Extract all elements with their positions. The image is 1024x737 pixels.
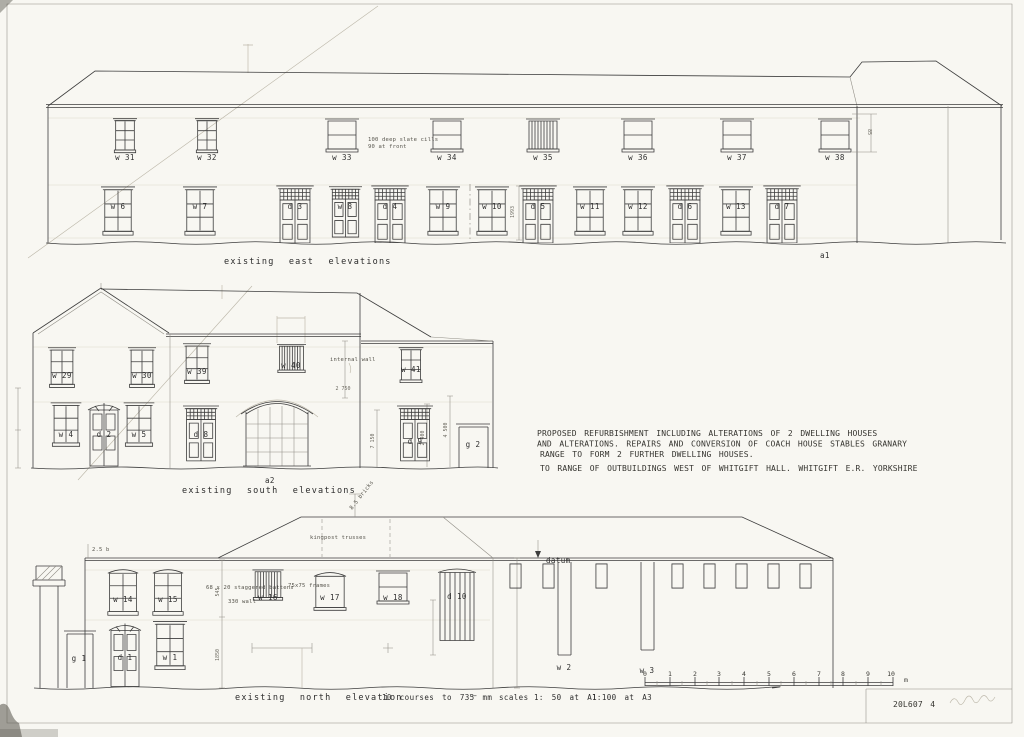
label-w36: w 36	[628, 153, 648, 162]
window-w15	[153, 570, 183, 616]
label-w18: w 18	[383, 593, 403, 602]
dim-545: 545	[215, 587, 221, 596]
north-caption: existing north elevation	[235, 693, 403, 703]
label-d5: d 5	[531, 202, 546, 211]
label-w14: w 14	[113, 595, 133, 604]
scale-tick-0: 0	[643, 670, 647, 678]
edge-smudge-bottom	[0, 729, 58, 737]
notes-line4: TO RANGE OF OUTBUILDINGS WEST OF WHITGIF…	[540, 464, 918, 473]
paper	[0, 0, 1024, 737]
label-d6: d 6	[678, 202, 693, 211]
cill-note-line2: 90 at front	[368, 144, 407, 150]
label-d10: d 10	[447, 592, 467, 601]
door-d7	[763, 186, 800, 243]
south-ref-a2: a2	[265, 476, 275, 485]
window-w10	[475, 187, 509, 235]
window-w32	[195, 119, 219, 153]
scale-tick-9: 9	[866, 670, 870, 678]
door-d9	[397, 406, 433, 461]
window-w29	[48, 348, 76, 388]
datum-arrow	[535, 551, 541, 558]
scale-unit: m	[904, 676, 908, 684]
window-w17	[314, 573, 346, 611]
label-w8: w 8	[338, 202, 353, 211]
north-elevation: datum kingpost trusses 8.5 bricks 2.5 b …	[33, 480, 833, 703]
window-w1	[153, 621, 187, 669]
label-d3: d 3	[288, 202, 303, 211]
label-w32: w 32	[197, 153, 217, 162]
door-d3	[276, 186, 313, 243]
wall-note: 330 wall	[228, 599, 256, 605]
label-g2: g 2	[466, 440, 481, 449]
drawing-sheet: 1993 85 100 deep slate cills 90 at front…	[0, 0, 1024, 737]
scale-tick-2: 2	[693, 670, 697, 678]
window-w9	[426, 187, 460, 235]
vent-opening	[800, 564, 811, 588]
door-d5	[519, 186, 556, 243]
scan-artifacts	[0, 0, 1024, 737]
caption-separator: —	[472, 691, 477, 700]
dim-4500: 4 500	[443, 422, 449, 437]
vent-opening	[672, 564, 683, 588]
notes-line1: PROPOSED REFURBISHMENT INCLUDING ALTERAT…	[537, 429, 877, 438]
corner-smudge-topleft	[0, 0, 13, 13]
window-w33	[325, 119, 359, 152]
label-w17: w 17	[320, 593, 340, 602]
drawing-number: 20L607 4	[893, 700, 935, 709]
window-w37	[720, 119, 754, 152]
east-ref-a1: a1	[820, 251, 830, 260]
label-w3: w 3	[640, 666, 655, 675]
internal-wall-note: internal wall	[330, 357, 376, 363]
label-w5: w 5	[132, 430, 147, 439]
scale-tick-6: 6	[792, 670, 796, 678]
label-d2: d 2	[97, 430, 112, 439]
notes-line3: RANGE TO FORM 2 FURTHER DWELLING HOUSES.	[540, 450, 754, 459]
window-w4	[51, 403, 82, 446]
label-w9: w 9	[436, 202, 451, 211]
label-w41: w 41	[401, 365, 421, 374]
vent-opening	[543, 564, 554, 588]
kingpost-note: kingpost trusses	[310, 535, 366, 541]
vent-opening	[736, 564, 747, 588]
window-w5	[124, 403, 155, 446]
label-w39: w 39	[187, 367, 207, 376]
paper-vignette	[0, 0, 1024, 737]
vent-opening	[596, 564, 607, 588]
scale-a1: 1: 50 at A1	[534, 693, 597, 702]
label-w16: w 16	[258, 593, 278, 602]
scale-tick-10: 10	[887, 670, 895, 678]
label-d1: d 1	[118, 653, 133, 662]
south-elevation: 2 750 internal wall 2 400 4 500 7 150 w …	[15, 283, 498, 496]
scale-tick-5: 5	[767, 670, 771, 678]
label-w40: w 40	[281, 361, 301, 370]
label-w11: w 11	[580, 202, 600, 211]
label-w30: w 30	[132, 371, 152, 380]
window-w35	[526, 119, 560, 152]
notes-block: PROPOSED REFURBISHMENT INCLUDING ALTERAT…	[537, 429, 918, 473]
east-caption: existing east elevations	[224, 257, 392, 267]
label-w34: w 34	[437, 153, 457, 162]
label-w35: w 35	[533, 153, 553, 162]
east-elevation: 1993 85 100 deep slate cills 90 at front…	[28, 6, 1006, 267]
label-w1: w 1	[163, 653, 178, 662]
window-w12	[621, 187, 655, 235]
scale-tick-8: 8	[841, 670, 845, 678]
scale-tick-4: 4	[742, 670, 746, 678]
vent-opening	[510, 564, 521, 588]
scale-tick-3: 3	[717, 670, 721, 678]
east-linework	[28, 6, 1006, 258]
vent-opening	[768, 564, 779, 588]
label-w38: w 38	[825, 153, 845, 162]
label-d4: d 4	[383, 202, 398, 211]
label-w12: w 12	[628, 202, 648, 211]
label-w2: w 2	[557, 663, 572, 672]
scale-bar: 0 1 2 3 4 5 6 7 8 9 10 m	[643, 670, 908, 686]
window-w14	[108, 570, 138, 616]
frames-note: 75x75 frames	[288, 583, 330, 589]
elevations-drawing: 1993 85 100 deep slate cills 90 at front…	[0, 0, 1024, 737]
title-block: 20L607 4	[866, 689, 1012, 723]
window-w11	[573, 187, 607, 235]
east-height-dim: 1993	[510, 206, 516, 218]
south-caption: existing south elevations	[182, 486, 356, 496]
notes-line2: AND ALTERATIONS. REPAIRS AND CONVERSION …	[537, 440, 907, 449]
label-d8: d 8	[194, 430, 209, 439]
dim-1850: 1850	[215, 649, 221, 661]
cill-note-line1: 100 deep slate cills	[368, 137, 438, 143]
south-linework	[15, 283, 498, 480]
label-w37: w 37	[727, 153, 747, 162]
window-w8	[329, 187, 362, 237]
vent-opening	[704, 564, 715, 588]
window-w30	[128, 348, 156, 388]
scales-label: scales	[499, 693, 529, 702]
north-linework	[33, 494, 833, 689]
door-d6	[666, 186, 703, 243]
label-w29: w 29	[52, 371, 72, 380]
window-w13	[719, 187, 753, 235]
label-w4: w 4	[59, 430, 74, 439]
label-w15: w 15	[158, 595, 178, 604]
window-w34	[430, 119, 464, 152]
door-d10	[438, 569, 476, 641]
label-w33: w 33	[332, 153, 352, 162]
window-w6	[101, 187, 135, 235]
door-d4	[371, 186, 408, 243]
scale-a3: 1:100 at A3	[592, 693, 652, 702]
bricks-wall-note: 2.5 b	[92, 547, 110, 553]
scale-tick-1: 1	[668, 670, 672, 678]
window-w31	[113, 119, 137, 153]
window-w38	[818, 119, 852, 152]
east-right-dim: 85	[866, 129, 872, 135]
label-w10: w 10	[482, 202, 502, 211]
label-w7: w 7	[193, 202, 208, 211]
window-w7	[183, 187, 217, 235]
window-w36	[621, 119, 655, 152]
label-d9: d 9	[408, 437, 423, 446]
dim-7150: 7 150	[370, 433, 376, 448]
label-w6: w 6	[111, 202, 126, 211]
label-w13: w 13	[726, 202, 746, 211]
signature-mark	[950, 696, 995, 705]
scale-tick-7: 7	[817, 670, 821, 678]
label-d7: d 7	[775, 202, 790, 211]
dim-2750: 2 750	[335, 386, 350, 392]
label-w31: w 31	[115, 153, 135, 162]
window-w39	[183, 344, 211, 384]
label-g1: g 1	[72, 654, 87, 663]
